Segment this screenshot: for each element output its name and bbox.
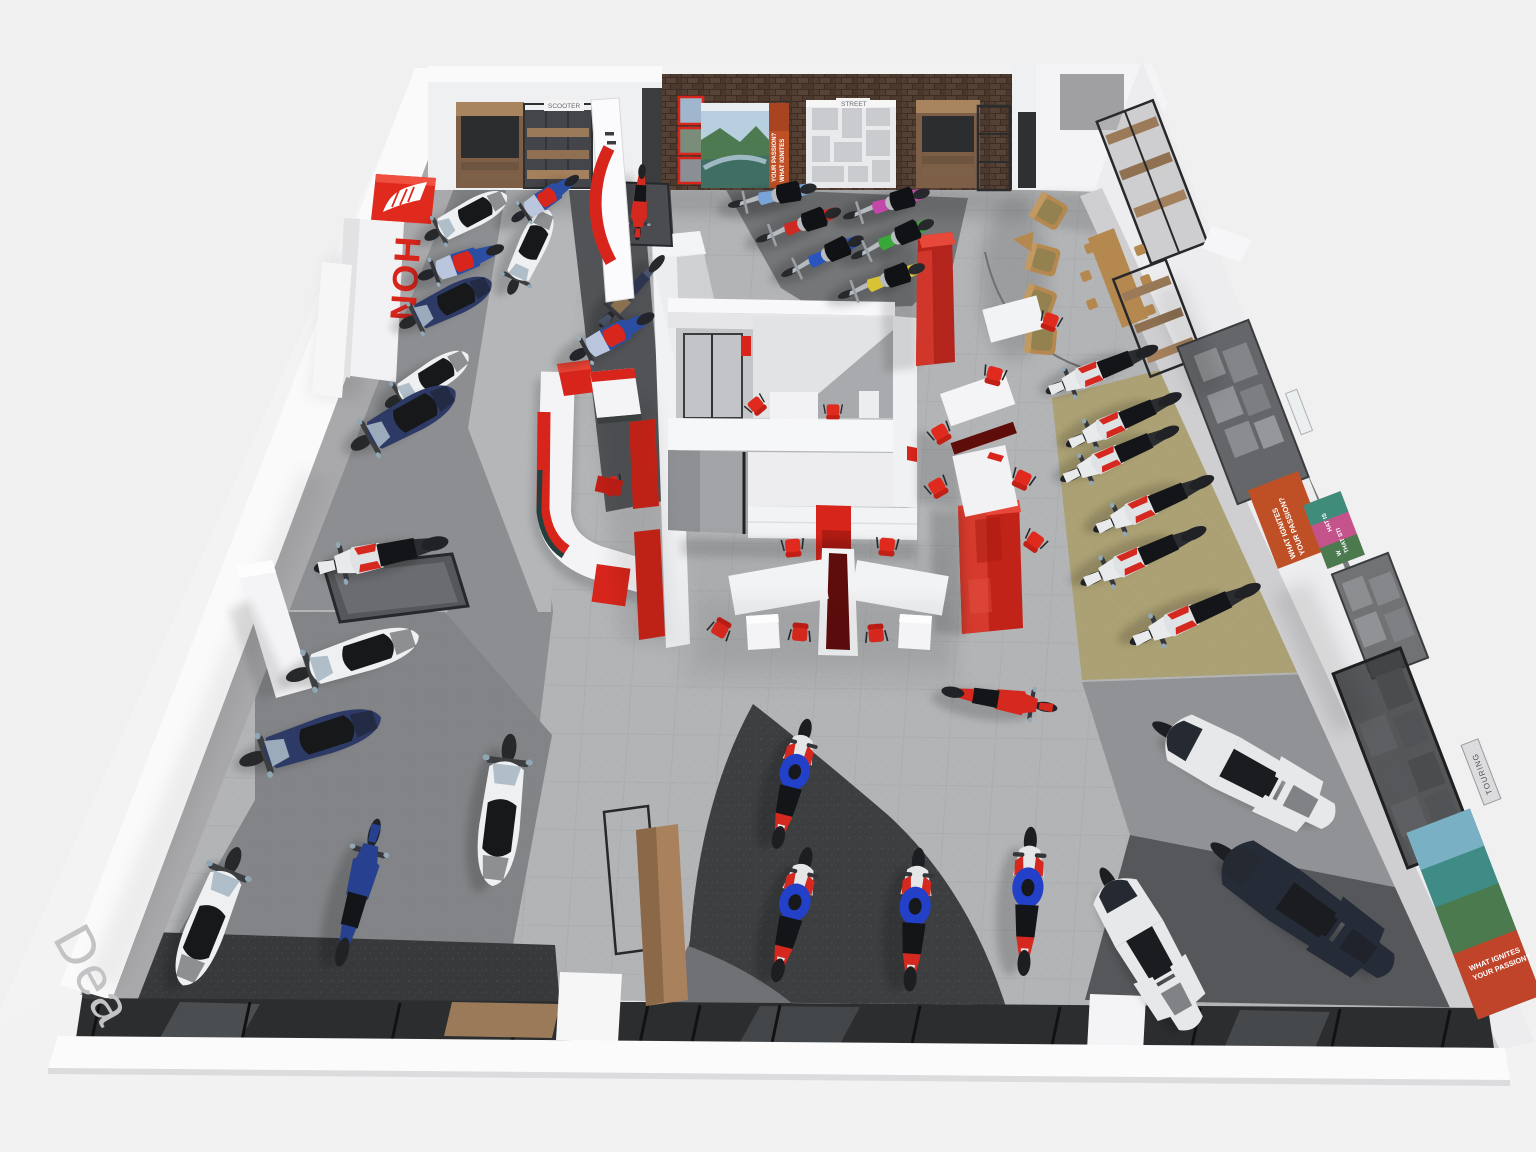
svg-text:SCOOTER: SCOOTER [548,103,580,110]
svg-text:WHAT IGNITES: WHAT IGNITES [780,139,786,182]
svg-text:STREET: STREET [841,101,867,108]
svg-text:YOUR PASSION?: YOUR PASSION? [772,132,778,182]
